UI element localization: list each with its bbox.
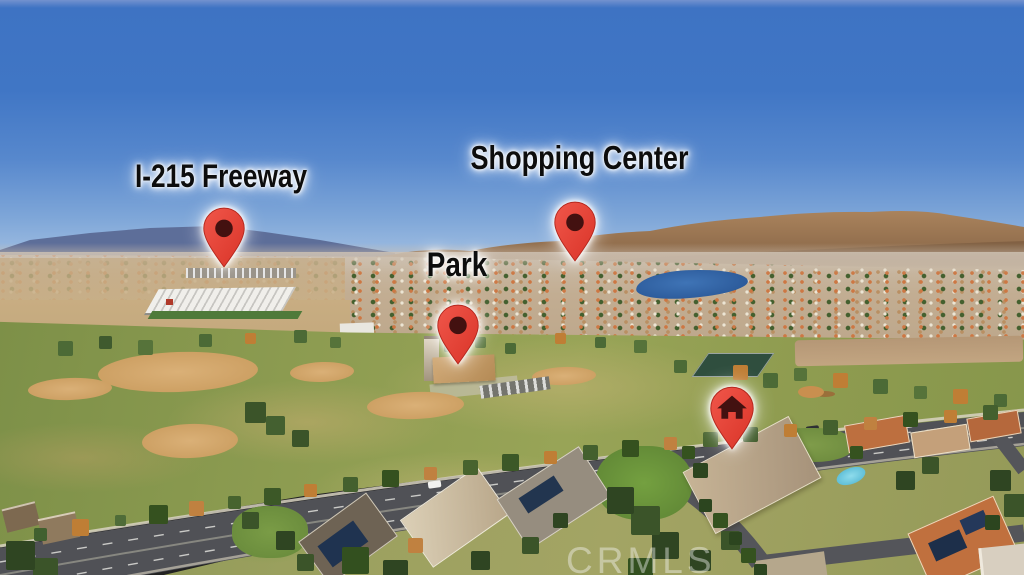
map-pin-dot-icon bbox=[552, 201, 598, 262]
park-label: Park bbox=[416, 246, 498, 285]
lawn bbox=[596, 446, 692, 520]
solar-panels bbox=[960, 510, 990, 535]
lawn bbox=[232, 506, 308, 558]
park-map-pin bbox=[435, 304, 481, 365]
solar-panels bbox=[928, 529, 967, 561]
crmls-watermark: CRMLS bbox=[566, 540, 716, 575]
map-pin-home-icon bbox=[708, 386, 756, 450]
map-pin-dot-icon bbox=[201, 207, 247, 268]
shopping-center-map-pin bbox=[552, 201, 598, 262]
palm-trees bbox=[0, 0, 1, 1]
solar-panels bbox=[518, 476, 563, 514]
freeway-map-pin bbox=[201, 207, 247, 268]
aerial-photo: CRMLS I-215 Freeway Shopping Ce bbox=[0, 0, 1024, 575]
house-roof bbox=[978, 542, 1024, 575]
shopping-center-label: Shopping Center bbox=[471, 139, 676, 177]
freeway-label: I-215 Freeway bbox=[122, 158, 320, 195]
solar-panels bbox=[317, 520, 368, 567]
map-pin-dot-icon bbox=[435, 304, 481, 365]
home-map-pin bbox=[708, 386, 756, 450]
